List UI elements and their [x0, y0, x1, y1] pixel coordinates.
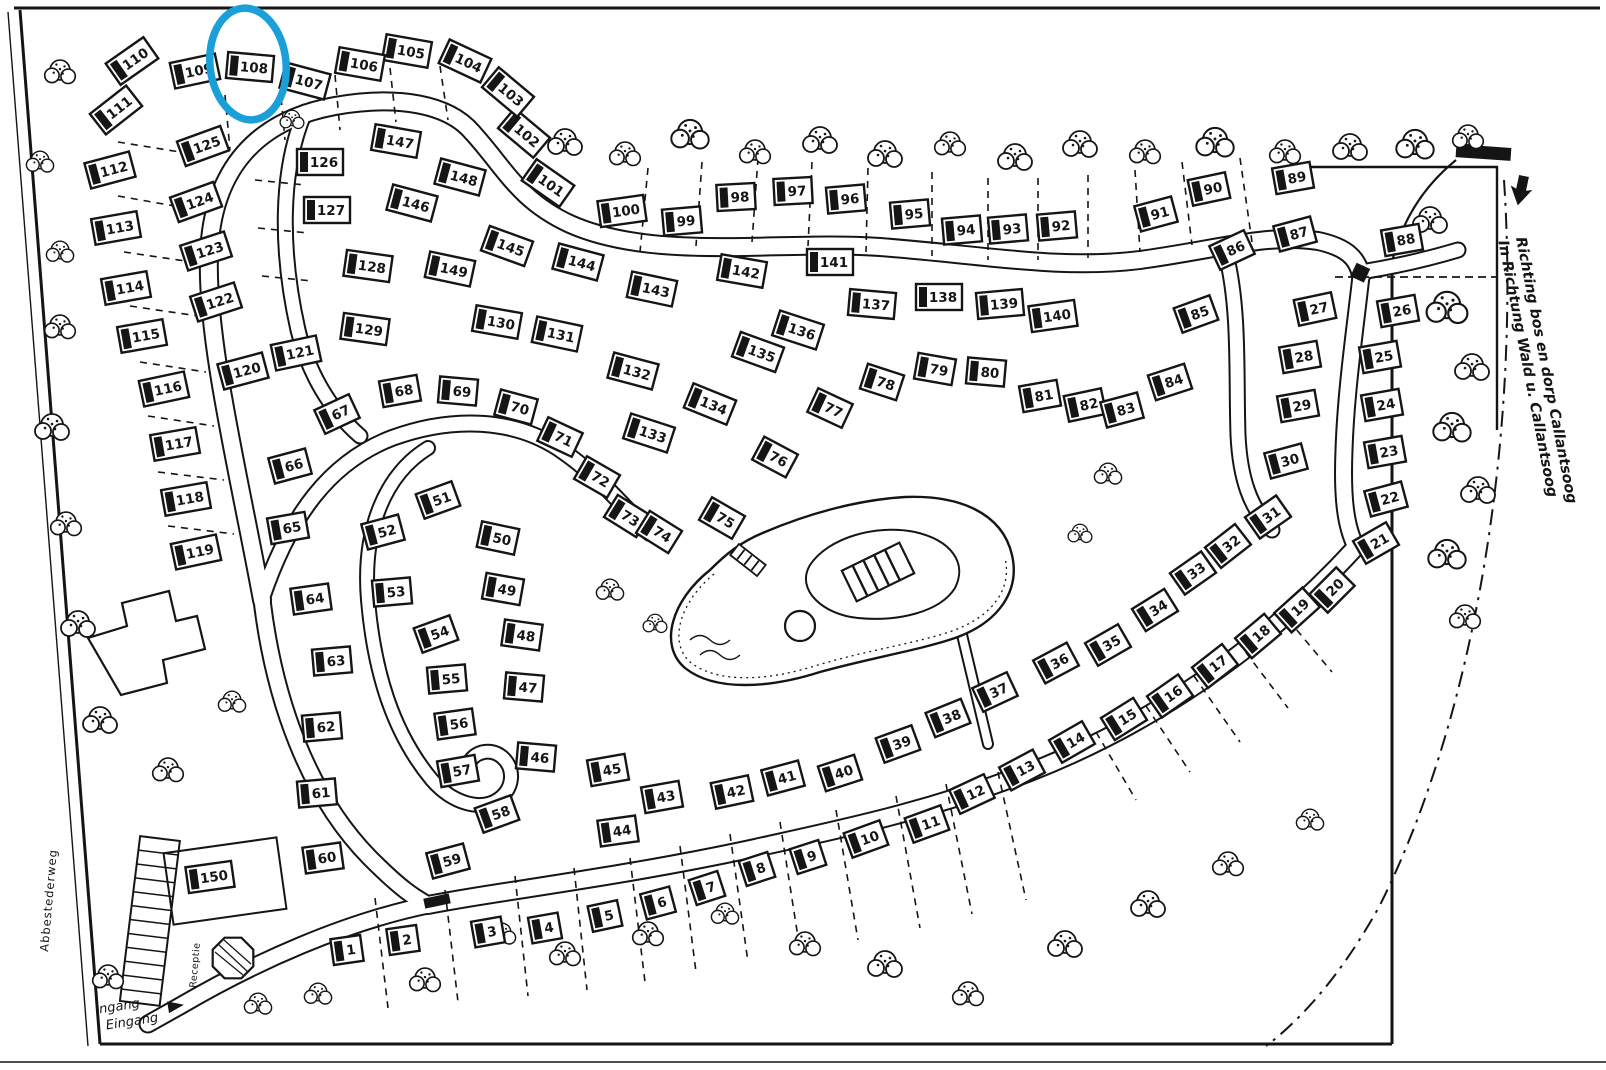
svg-text:62: 62	[316, 719, 336, 737]
svg-text:53: 53	[386, 584, 406, 602]
svg-text:68: 68	[393, 382, 414, 401]
svg-text:81: 81	[1033, 387, 1054, 406]
plot-marker-105: 105	[382, 34, 432, 68]
plot-marker-42: 42	[711, 775, 754, 808]
tree-icon	[643, 614, 667, 632]
tree-icon	[1063, 131, 1097, 157]
plot-marker-50: 50	[477, 521, 520, 554]
svg-text:47: 47	[518, 680, 538, 698]
plot-marker-55: 55	[427, 664, 467, 693]
plot-marker-98: 98	[716, 183, 755, 211]
plot-marker-123: 123	[180, 232, 232, 271]
plot-marker-145: 145	[481, 226, 533, 266]
svg-text:23: 23	[1378, 443, 1399, 462]
tree-icon	[1131, 891, 1165, 917]
plot-marker-146: 146	[386, 184, 437, 221]
plot-marker-134: 134	[684, 383, 736, 424]
svg-text:44: 44	[612, 822, 633, 840]
svg-text:139: 139	[989, 295, 1018, 313]
svg-text:45: 45	[601, 761, 622, 780]
svg-text:25: 25	[1373, 348, 1394, 367]
tree-icon	[1213, 852, 1244, 875]
plot-marker-97: 97	[773, 177, 812, 205]
plot-marker-2: 2	[386, 925, 419, 955]
tree-icon	[740, 140, 771, 163]
plot-marker-62: 62	[302, 712, 342, 741]
tree-icon	[1333, 134, 1367, 160]
tree-icon	[953, 982, 984, 1005]
plot-marker-5: 5	[588, 900, 623, 932]
plot-marker-92: 92	[1037, 211, 1077, 240]
plot-marker-141: 141	[807, 249, 853, 275]
plot-marker-26: 26	[1377, 295, 1419, 327]
svg-text:99: 99	[676, 213, 696, 231]
plot-marker-7: 7	[689, 871, 726, 905]
plot-marker-106: 106	[335, 47, 385, 81]
plot-marker-48: 48	[501, 619, 542, 650]
plot-marker-66: 66	[268, 449, 311, 484]
plot-marker-94: 94	[942, 215, 982, 244]
plot-marker-54: 54	[414, 615, 459, 652]
svg-text:64: 64	[305, 590, 326, 608]
tree-icon	[998, 144, 1032, 170]
plot-marker-99: 99	[662, 206, 702, 235]
plot-marker-135: 135	[732, 332, 784, 372]
plot-marker-131: 131	[532, 317, 582, 352]
plot-marker-133: 133	[623, 414, 675, 453]
svg-text:48: 48	[515, 627, 536, 645]
tree-icon	[1428, 540, 1465, 569]
svg-text:93: 93	[1002, 221, 1022, 239]
plot-marker-75: 75	[699, 497, 745, 539]
tree-icon	[46, 241, 73, 262]
svg-text:88: 88	[1395, 231, 1416, 250]
plot-marker-64: 64	[290, 583, 331, 614]
plot-marker-68: 68	[379, 375, 421, 407]
plot-marker-119: 119	[171, 535, 221, 570]
plot-marker-136: 136	[772, 311, 824, 350]
plot-marker-65: 65	[267, 512, 309, 544]
svg-text:55: 55	[441, 671, 461, 689]
plot-marker-142: 142	[717, 254, 767, 288]
tree-icon	[1270, 140, 1301, 163]
svg-text:96: 96	[840, 191, 860, 209]
plot-marker-57: 57	[437, 755, 479, 787]
tree-icon	[550, 942, 581, 965]
plot-marker-30: 30	[1264, 444, 1307, 479]
plot-marker-4: 4	[528, 913, 562, 944]
plot-marker-61: 61	[297, 778, 337, 807]
tree-icon	[51, 512, 82, 535]
tree-icon	[153, 758, 184, 781]
tree-icon	[1427, 292, 1468, 323]
tree-icon	[1068, 524, 1092, 542]
plot-marker-111: 111	[90, 86, 142, 135]
svg-text:24: 24	[1375, 396, 1396, 415]
svg-text:56: 56	[449, 715, 470, 733]
plot-marker-122: 122	[190, 283, 242, 322]
svg-text:57: 57	[451, 762, 472, 781]
svg-text:138: 138	[929, 290, 957, 306]
plot-marker-85: 85	[1174, 295, 1219, 332]
plot-marker-116: 116	[139, 372, 189, 407]
tree-icon	[671, 120, 708, 149]
svg-text:97: 97	[787, 183, 807, 200]
plot-marker-1: 1	[330, 935, 363, 965]
svg-text:46: 46	[530, 750, 550, 768]
building-outline	[88, 591, 205, 695]
tree-icon	[93, 965, 124, 988]
plot-marker-81: 81	[1019, 380, 1061, 412]
tree-icon	[45, 60, 76, 83]
tree-icon	[1196, 128, 1233, 157]
plot-marker-63: 63	[312, 646, 352, 675]
plot-marker-79: 79	[914, 353, 956, 385]
plot-marker-34: 34	[1132, 589, 1178, 631]
plot-marker-24: 24	[1361, 389, 1403, 421]
plot-marker-84: 84	[1148, 364, 1192, 400]
plot-marker-51: 51	[416, 481, 461, 518]
svg-text:60: 60	[317, 849, 338, 867]
plot-marker-148: 148	[434, 158, 485, 195]
plot-marker-103: 103	[482, 67, 534, 116]
plot-marker-100: 100	[597, 195, 646, 227]
plot-marker-89: 89	[1272, 162, 1314, 194]
plot-marker-91: 91	[1134, 197, 1177, 232]
svg-text:141: 141	[820, 255, 848, 271]
plot-marker-127: 127	[304, 197, 350, 223]
holiday-park-site-map: 1234567891011121314151617181920212223242…	[0, 0, 1606, 1070]
tree-icon	[596, 579, 623, 600]
octagon-kiosk	[213, 938, 254, 979]
svg-text:98: 98	[730, 189, 750, 206]
plot-marker-143: 143	[627, 272, 677, 307]
plot-marker-115: 115	[117, 319, 167, 353]
tree-icon	[83, 707, 117, 733]
tree-icon	[1433, 413, 1470, 442]
plot-marker-29: 29	[1277, 390, 1319, 422]
plot-marker-33: 33	[1170, 551, 1216, 594]
plot-marker-104: 104	[439, 39, 492, 82]
plot-marker-27: 27	[1294, 292, 1337, 325]
plot-marker-140: 140	[1028, 300, 1077, 332]
svg-text:127: 127	[317, 203, 345, 219]
tree-icon	[868, 141, 902, 167]
plot-marker-80: 80	[966, 357, 1006, 386]
plot-marker-59: 59	[426, 844, 469, 879]
tree-icon	[1461, 477, 1495, 503]
plot-marker-126: 126	[297, 149, 343, 175]
plot-marker-53: 53	[372, 577, 412, 606]
plot-marker-40: 40	[818, 755, 862, 791]
plot-marker-3: 3	[471, 917, 505, 948]
plot-marker-45: 45	[587, 754, 629, 786]
plot-marker-118: 118	[161, 482, 211, 516]
tree-icon	[711, 903, 738, 924]
svg-text:92: 92	[1051, 218, 1071, 236]
plot-marker-149: 149	[425, 252, 475, 287]
plot-marker-22: 22	[1364, 482, 1407, 517]
plot-marker-95: 95	[890, 199, 930, 228]
reception-label: Receptie	[188, 942, 203, 988]
plot-marker-46: 46	[516, 742, 556, 771]
tree-icon	[1453, 125, 1484, 148]
plot-marker-150: 150	[185, 861, 234, 893]
plot-marker-147: 147	[371, 124, 421, 158]
plot-marker-125: 125	[177, 126, 229, 166]
plot-marker-69: 69	[438, 376, 478, 405]
plot-marker-6: 6	[640, 887, 676, 920]
tree-icon	[1296, 809, 1323, 830]
tree-icon	[803, 127, 837, 153]
plot-marker-77: 77	[807, 388, 852, 428]
tree-icon	[1455, 354, 1489, 380]
plot-marker-25: 25	[1359, 341, 1401, 373]
svg-text:95: 95	[904, 206, 924, 224]
plot-marker-44: 44	[597, 815, 638, 846]
plot-marker-43: 43	[641, 781, 683, 813]
svg-text:29: 29	[1291, 397, 1312, 416]
plot-marker-78: 78	[860, 364, 904, 400]
plot-marker-96: 96	[826, 184, 866, 213]
plot-marker-102: 102	[498, 108, 550, 157]
plot-marker-108: 108	[226, 52, 274, 82]
svg-text:61: 61	[311, 785, 331, 803]
scanned-site-map-page: 1234567891011121314151617181920212223242…	[0, 0, 1606, 1070]
street-label: Abbestederweg	[37, 848, 60, 952]
direction-sign: Richting bos en dorp Callantsoog In Rich…	[1494, 236, 1579, 509]
svg-text:65: 65	[281, 519, 302, 538]
tree-icon	[548, 129, 582, 155]
tree-icon	[790, 932, 821, 955]
tree-icon	[610, 142, 641, 165]
svg-text:28: 28	[1293, 348, 1314, 367]
svg-text:137: 137	[861, 296, 890, 314]
plot-marker-47: 47	[504, 672, 544, 701]
svg-text:89: 89	[1286, 169, 1307, 188]
plot-marker-49: 49	[482, 573, 524, 605]
plot-marker-130: 130	[472, 305, 522, 339]
svg-text:69: 69	[452, 384, 472, 402]
plot-marker-38: 38	[926, 699, 971, 737]
plot-marker-83: 83	[1100, 393, 1143, 428]
tree-icon	[45, 315, 76, 338]
plot-marker-23: 23	[1364, 436, 1406, 468]
plot-marker-32: 32	[1205, 524, 1251, 568]
plot-marker-60: 60	[302, 842, 343, 873]
tree-icon	[1048, 931, 1082, 957]
svg-text:94: 94	[956, 222, 976, 240]
tree-icon	[868, 951, 902, 977]
plot-marker-129: 129	[340, 313, 389, 345]
plot-marker-28: 28	[1279, 341, 1321, 373]
plot-marker-39: 39	[876, 725, 921, 762]
svg-text:43: 43	[655, 788, 676, 807]
plot-marker-112: 112	[84, 151, 135, 188]
tree-icon	[218, 691, 245, 712]
plot-marker-128: 128	[343, 250, 392, 282]
plot-marker-139: 139	[976, 289, 1024, 319]
plot-marker-36: 36	[1033, 643, 1079, 684]
plot-marker-35: 35	[1085, 624, 1131, 666]
svg-text:126: 126	[310, 155, 338, 171]
plot-marker-93: 93	[988, 214, 1028, 243]
tree-icon	[633, 922, 664, 945]
exit-arrow-icon	[1507, 174, 1535, 208]
svg-text:49: 49	[496, 581, 517, 600]
island-ring-feature	[785, 611, 815, 641]
plot-marker-132: 132	[607, 352, 658, 389]
svg-text:80: 80	[980, 365, 1000, 383]
plot-marker-88: 88	[1381, 224, 1423, 256]
plot-marker-144: 144	[552, 243, 603, 280]
plot-marker-76: 76	[752, 437, 798, 478]
tree-icon	[1396, 130, 1433, 159]
svg-text:79: 79	[928, 361, 949, 380]
plot-marker-138: 138	[916, 284, 962, 310]
plot-marker-117: 117	[150, 427, 200, 461]
tree-icon	[410, 968, 441, 991]
svg-text:63: 63	[326, 653, 346, 671]
plot-marker-56: 56	[434, 708, 475, 739]
plot-marker-137: 137	[848, 289, 896, 319]
plot-marker-90: 90	[1188, 172, 1231, 205]
tree-icon	[244, 993, 271, 1014]
tree-icon	[1130, 140, 1161, 163]
plot-marker-113: 113	[91, 211, 141, 245]
tree-icon	[935, 132, 966, 155]
svg-text:108: 108	[239, 59, 268, 77]
plot-marker-110: 110	[106, 37, 159, 85]
svg-text:26: 26	[1391, 302, 1412, 321]
tree-icon	[304, 983, 331, 1004]
plot-marker-41: 41	[761, 761, 804, 796]
tree-icon	[1094, 463, 1121, 484]
plot-marker-114: 114	[101, 271, 151, 305]
parking-strip	[120, 836, 180, 1006]
